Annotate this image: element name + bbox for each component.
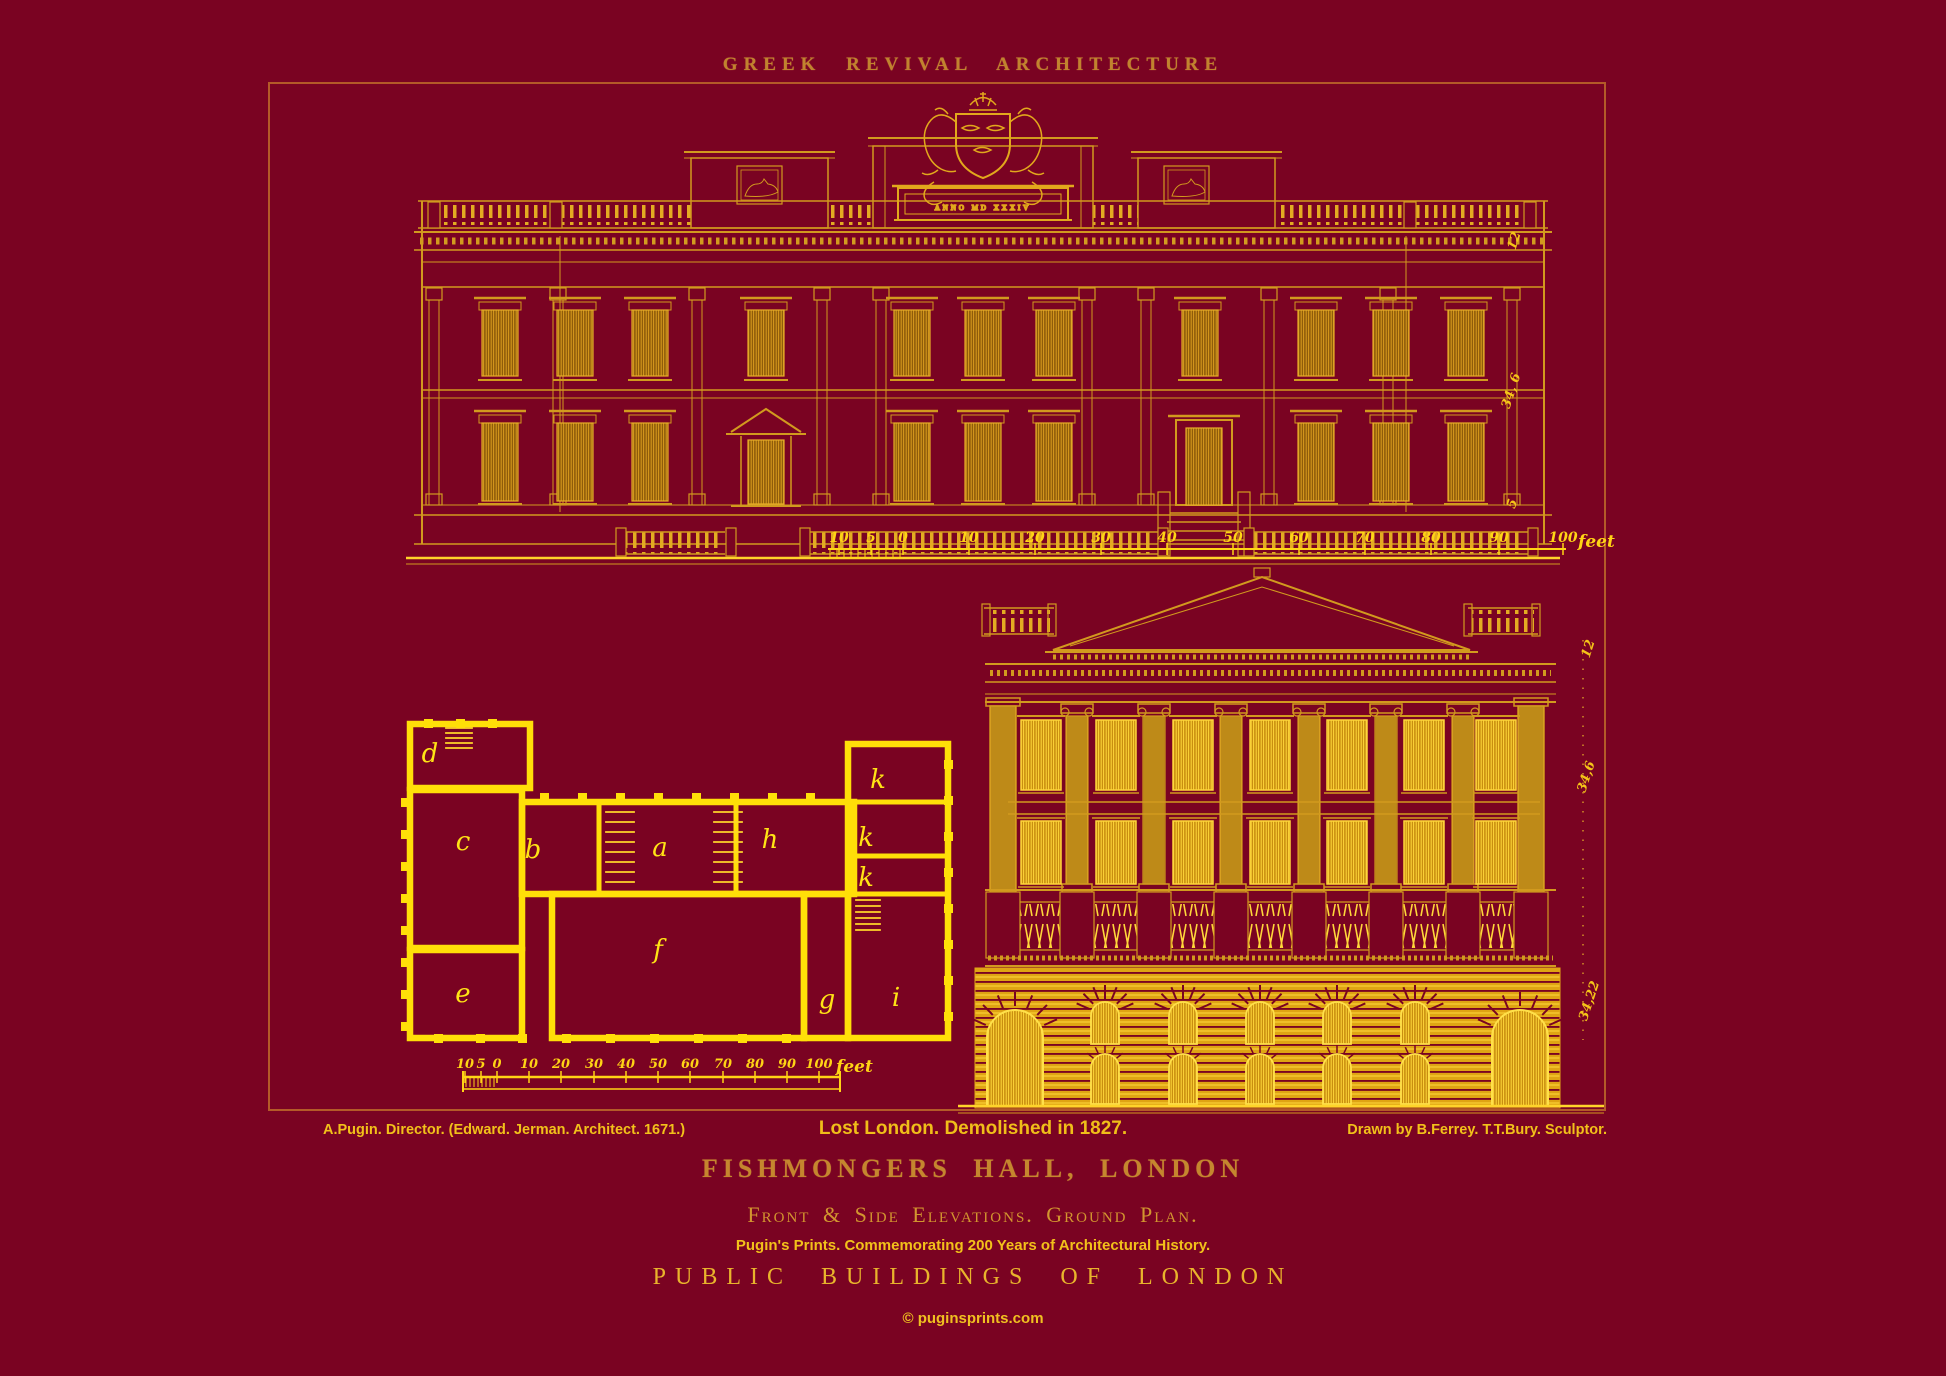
- scale-label: 0: [492, 1057, 501, 1072]
- pedestal-inscription: ANNO MD XXXIV: [935, 204, 1032, 212]
- scale-label: 30: [1091, 530, 1111, 546]
- scale-label: 20: [1024, 530, 1045, 546]
- scale-unit-label: feet: [835, 1057, 873, 1077]
- right-supporter-icon: [1010, 108, 1044, 174]
- room-label: g: [819, 985, 836, 1015]
- front-elevation-drawing: [406, 138, 1560, 564]
- left-supporter-icon: [922, 108, 956, 174]
- scale-label: 60: [681, 1057, 699, 1072]
- room-label: k: [858, 823, 874, 853]
- plan-scale-labels: 1050102030405060708090100: [456, 1057, 833, 1072]
- scale-label: 50: [649, 1057, 667, 1072]
- scale-label: 50: [1223, 530, 1243, 546]
- scale-label: 30: [585, 1057, 603, 1072]
- scale-label: 80: [746, 1057, 764, 1072]
- scale-label: 0: [898, 530, 908, 546]
- website-credit: © puginsprints.com: [0, 1310, 1946, 1327]
- dimension-label: 12: [1579, 638, 1599, 660]
- scale-label: 70: [1355, 530, 1375, 546]
- scale-label: 10: [959, 530, 979, 546]
- room-label: k: [870, 765, 886, 795]
- scale-label: 90: [1489, 530, 1509, 546]
- dimension-label: 34,6: [1575, 760, 1599, 795]
- poster: ANNO MD XXXIV 1050102030405060708090100 …: [0, 0, 1946, 1376]
- dimension-label: 34, 6: [1499, 371, 1524, 410]
- title-subtitle: Front & Side Elevations. Ground Plan.: [0, 1202, 1946, 1228]
- commemoration-line: Pugin's Prints. Commemorating 200 Years …: [0, 1237, 1946, 1254]
- room-label: b: [525, 835, 542, 865]
- side-elevation-drawing: [958, 568, 1604, 1113]
- scale-label: 10: [456, 1057, 474, 1072]
- room-label: a: [652, 833, 668, 863]
- dimension-label: 5: [1504, 497, 1521, 510]
- scale-label: 10: [829, 530, 849, 546]
- scale-label: 70: [714, 1057, 732, 1072]
- attribution-artists: Drawn by B.Ferrey. T.T.Bury. Sculptor.: [1347, 1122, 1607, 1138]
- scale-label: 5: [476, 1057, 485, 1072]
- room-label: k: [858, 863, 874, 893]
- front-elevation-measurements: 12 34, 6 5: [1499, 230, 1525, 511]
- scale-unit-label: feet: [1577, 532, 1615, 552]
- dimension-label: 34,22: [1576, 979, 1603, 1022]
- title-main: FISHMONGERS HALL, LONDON: [0, 1154, 1946, 1184]
- crown-icon: [969, 92, 997, 110]
- room-label: i: [892, 983, 900, 1013]
- caption-lost-london: Lost London. Demolished in 1827.: [0, 1118, 1946, 1140]
- scale-label: 20: [551, 1057, 570, 1072]
- room-label: e: [455, 979, 470, 1009]
- scale-label: 60: [1289, 530, 1309, 546]
- dimension-label: 12: [1505, 230, 1525, 252]
- scale-label: 40: [617, 1057, 635, 1072]
- room-label: d: [422, 739, 439, 769]
- scale-label: 90: [778, 1057, 796, 1072]
- series-title: PUBLIC BUILDINGS OF LONDON: [0, 1264, 1946, 1291]
- room-label: h: [762, 825, 779, 855]
- scale-label: 5: [866, 530, 876, 546]
- scale-label: 80: [1421, 530, 1441, 546]
- scale-label: 40: [1157, 530, 1177, 546]
- scale-label: 100: [1548, 530, 1577, 546]
- poster-header: GREEK REVIVAL ARCHITECTURE: [0, 54, 1946, 76]
- plan-room-labels: d c b a h k k k e f g i: [422, 739, 900, 1015]
- scale-label: 10: [520, 1057, 538, 1072]
- scale-label: 100: [805, 1057, 832, 1072]
- side-elevation-measurements: 12 34,6 34,22: [1575, 638, 1603, 1023]
- room-label: f: [651, 935, 667, 965]
- room-label: c: [456, 827, 471, 857]
